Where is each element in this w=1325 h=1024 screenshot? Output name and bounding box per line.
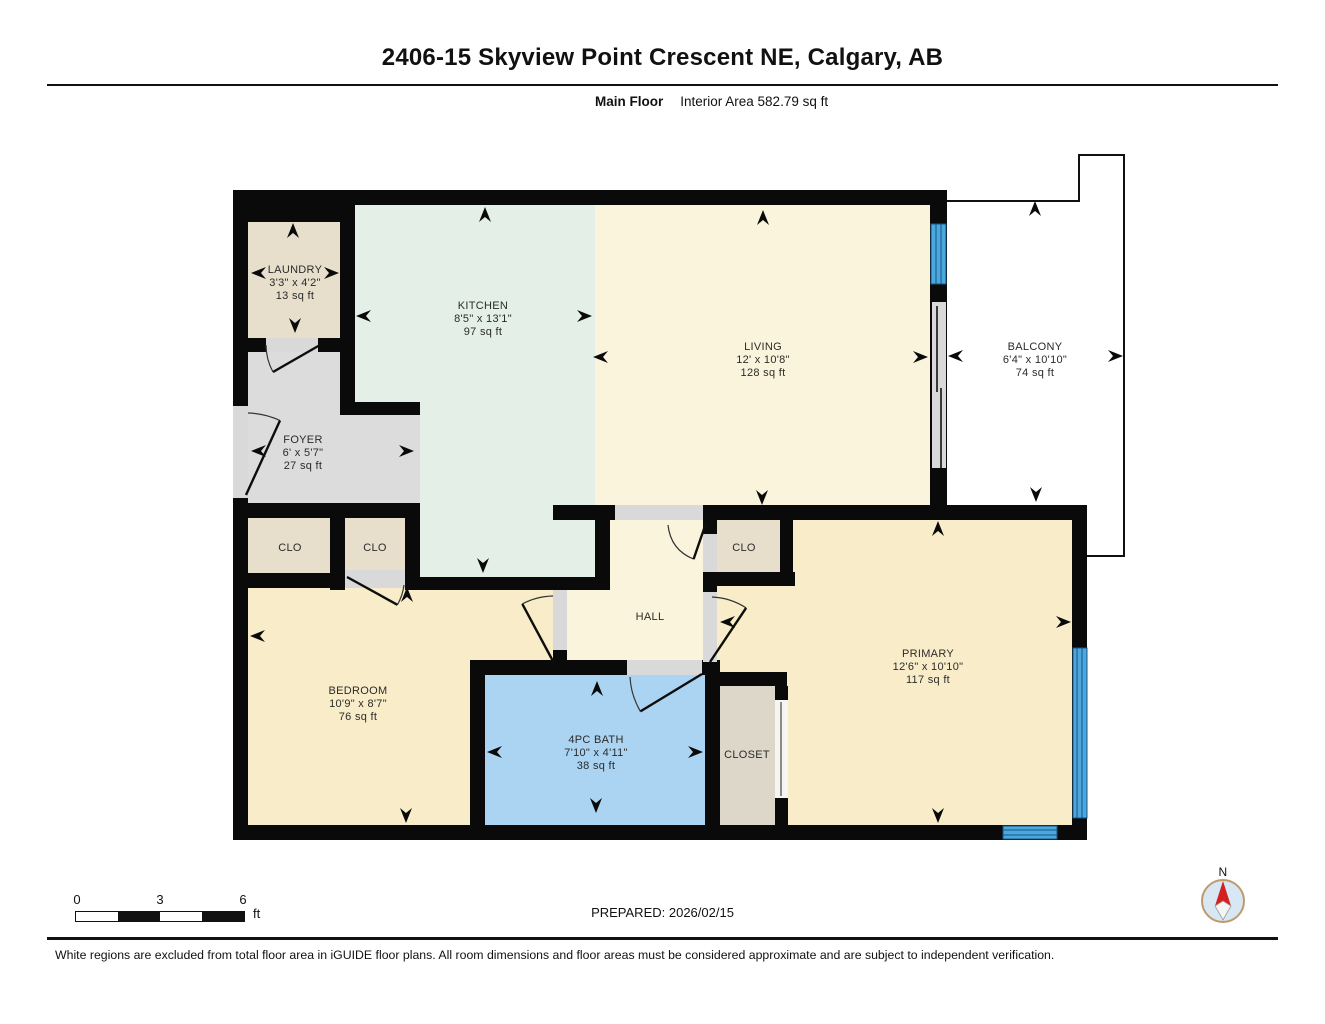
wall-segment — [703, 505, 1087, 520]
sliding-patio-door — [932, 302, 946, 468]
compass: N — [1193, 863, 1253, 933]
dim-arrow-down — [1030, 487, 1042, 502]
wall-segment — [248, 573, 332, 588]
closet3-label: CLO — [732, 542, 756, 554]
wall-segment — [233, 503, 420, 518]
dim-arrow-up — [1029, 201, 1041, 216]
compass-north-label: N — [1219, 865, 1228, 879]
wall-segment — [248, 338, 266, 352]
wall-segment — [720, 672, 787, 686]
wall-segment — [318, 338, 340, 352]
dim-arrow-right — [1108, 350, 1123, 362]
living-label: LIVING — [744, 341, 782, 353]
wall-segment — [233, 190, 355, 222]
primary-label: PRIMARY — [902, 648, 954, 660]
foyer-area: 27 sq ft — [284, 460, 322, 472]
door-opening — [553, 590, 567, 650]
room-bedroom — [470, 588, 553, 662]
room-foyer — [345, 413, 420, 503]
passage-opening — [615, 505, 703, 520]
primary-dims: 12'6" x 10'10" — [893, 661, 964, 673]
wall-segment — [553, 505, 615, 520]
wall-segment — [553, 577, 610, 590]
bedroom-dims: 10'9" x 8'7" — [329, 698, 387, 710]
wall-segment — [703, 572, 795, 586]
laundry-dims: 3'3" x 4'2" — [269, 277, 320, 289]
wall-segment — [340, 190, 355, 415]
closet-label: CLOSET — [724, 749, 770, 761]
wall-segment — [405, 503, 420, 590]
door-opening — [345, 570, 405, 588]
wall-segment — [775, 798, 788, 825]
door-opening — [703, 592, 717, 662]
balcony-area: 74 sq ft — [1016, 367, 1054, 379]
foyer-dims: 6' x 5'7" — [283, 447, 324, 459]
footer-rule — [47, 937, 1278, 940]
bedroom-label: BEDROOM — [329, 685, 388, 697]
hall-label: HALL — [636, 611, 665, 623]
closet1-label: CLO — [278, 542, 302, 554]
dim-arrow-left — [948, 350, 963, 362]
window — [1003, 826, 1057, 839]
window — [1073, 648, 1087, 818]
room-hall — [565, 588, 610, 660]
door-opening — [627, 660, 702, 675]
wall-segment — [233, 825, 1087, 840]
balcony-dims: 6'4" x 10'10" — [1003, 354, 1067, 366]
entry-door-opening — [233, 406, 248, 498]
floor-plan-svg: LAUNDRY 3'3" x 4'2" 13 sq ft KITCHEN 8'5… — [0, 0, 1325, 1024]
prepared-date: PREPARED: 2026/02/15 — [0, 905, 1325, 920]
kitchen-area: 97 sq ft — [464, 326, 502, 338]
window — [931, 224, 946, 284]
room-kitchen — [417, 413, 595, 577]
wall-segment — [705, 660, 720, 840]
room-foyer — [248, 352, 355, 503]
closet2-label: CLO — [363, 542, 387, 554]
wall-segment — [470, 660, 485, 840]
wall-segment — [345, 402, 420, 415]
wall-segment — [775, 686, 788, 700]
wall-segment — [330, 503, 345, 590]
kitchen-label: KITCHEN — [458, 300, 508, 312]
door-opening — [703, 534, 717, 572]
wall-segment — [470, 660, 627, 675]
living-area: 128 sq ft — [741, 367, 786, 379]
laundry-area: 13 sq ft — [276, 290, 314, 302]
bath-area: 38 sq ft — [577, 760, 615, 772]
primary-area: 117 sq ft — [906, 674, 950, 686]
bath-label: 4PC BATH — [568, 734, 623, 746]
living-dims: 12' x 10'8" — [736, 354, 790, 366]
foyer-label: FOYER — [283, 434, 322, 446]
balcony-label: BALCONY — [1008, 341, 1063, 353]
kitchen-dims: 8'5" x 13'1" — [454, 313, 512, 325]
bedroom-area: 76 sq ft — [339, 711, 377, 723]
disclaimer-text: White regions are excluded from total fl… — [55, 948, 1054, 962]
wall-segment — [420, 577, 555, 590]
floor-plan-page: 2406-15 Skyview Point Crescent NE, Calga… — [0, 0, 1325, 1024]
bath-dims: 7'10" x 4'11" — [564, 747, 627, 759]
laundry-label: LAUNDRY — [268, 264, 323, 276]
